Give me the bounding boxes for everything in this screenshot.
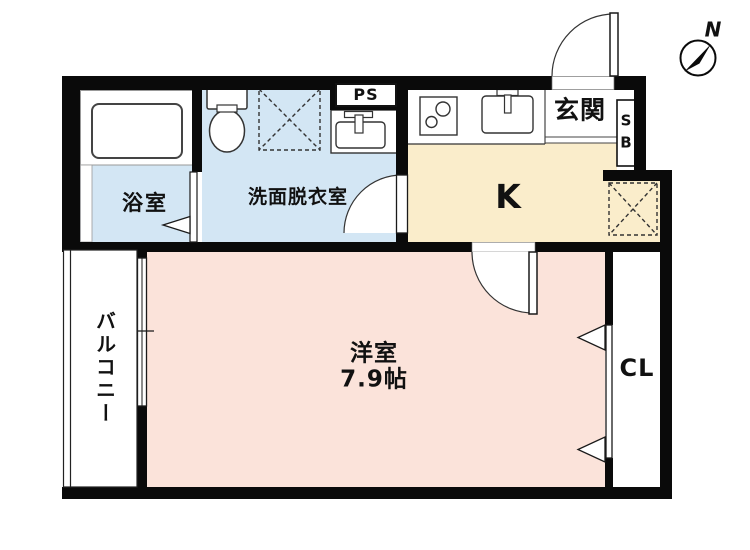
bath-edge-strip [81,165,93,242]
bathtub-icon [92,104,182,158]
closet-label: CL [620,355,655,383]
shoe-box-label: S B [620,110,631,154]
floorplan-drawing [0,0,750,550]
stove-icon [420,97,457,135]
western-room-name: 洋室 [340,341,408,367]
toilet-icon [207,88,247,152]
kitchen-label: K [495,178,521,216]
washbasin-icon [331,110,397,153]
entrance-label: 玄関 [554,97,606,126]
balcony-label: バルコニー [93,311,116,426]
kitchen-counter [408,90,545,145]
washroom-label: 洗面脱衣室 [248,187,348,209]
pipe-space-label: PS [353,86,378,104]
kitchen-sink-icon [482,90,533,134]
compass-icon [681,41,716,76]
floorplan: 浴室 洗面脱衣室 PS 玄関 S B K 洋室 7.9帖 CL バルコニー N [0,0,750,550]
shoe-box-label-s: S [620,110,631,132]
compass-north-label: N [705,19,722,42]
shoe-box-label-b: B [620,132,631,154]
western-room-label: 洋室 7.9帖 [340,341,408,394]
western-room-size: 7.9帖 [340,367,408,393]
bathroom-label: 浴室 [122,191,168,215]
fridge-nook-area [617,180,660,242]
entrance-door [552,13,618,90]
